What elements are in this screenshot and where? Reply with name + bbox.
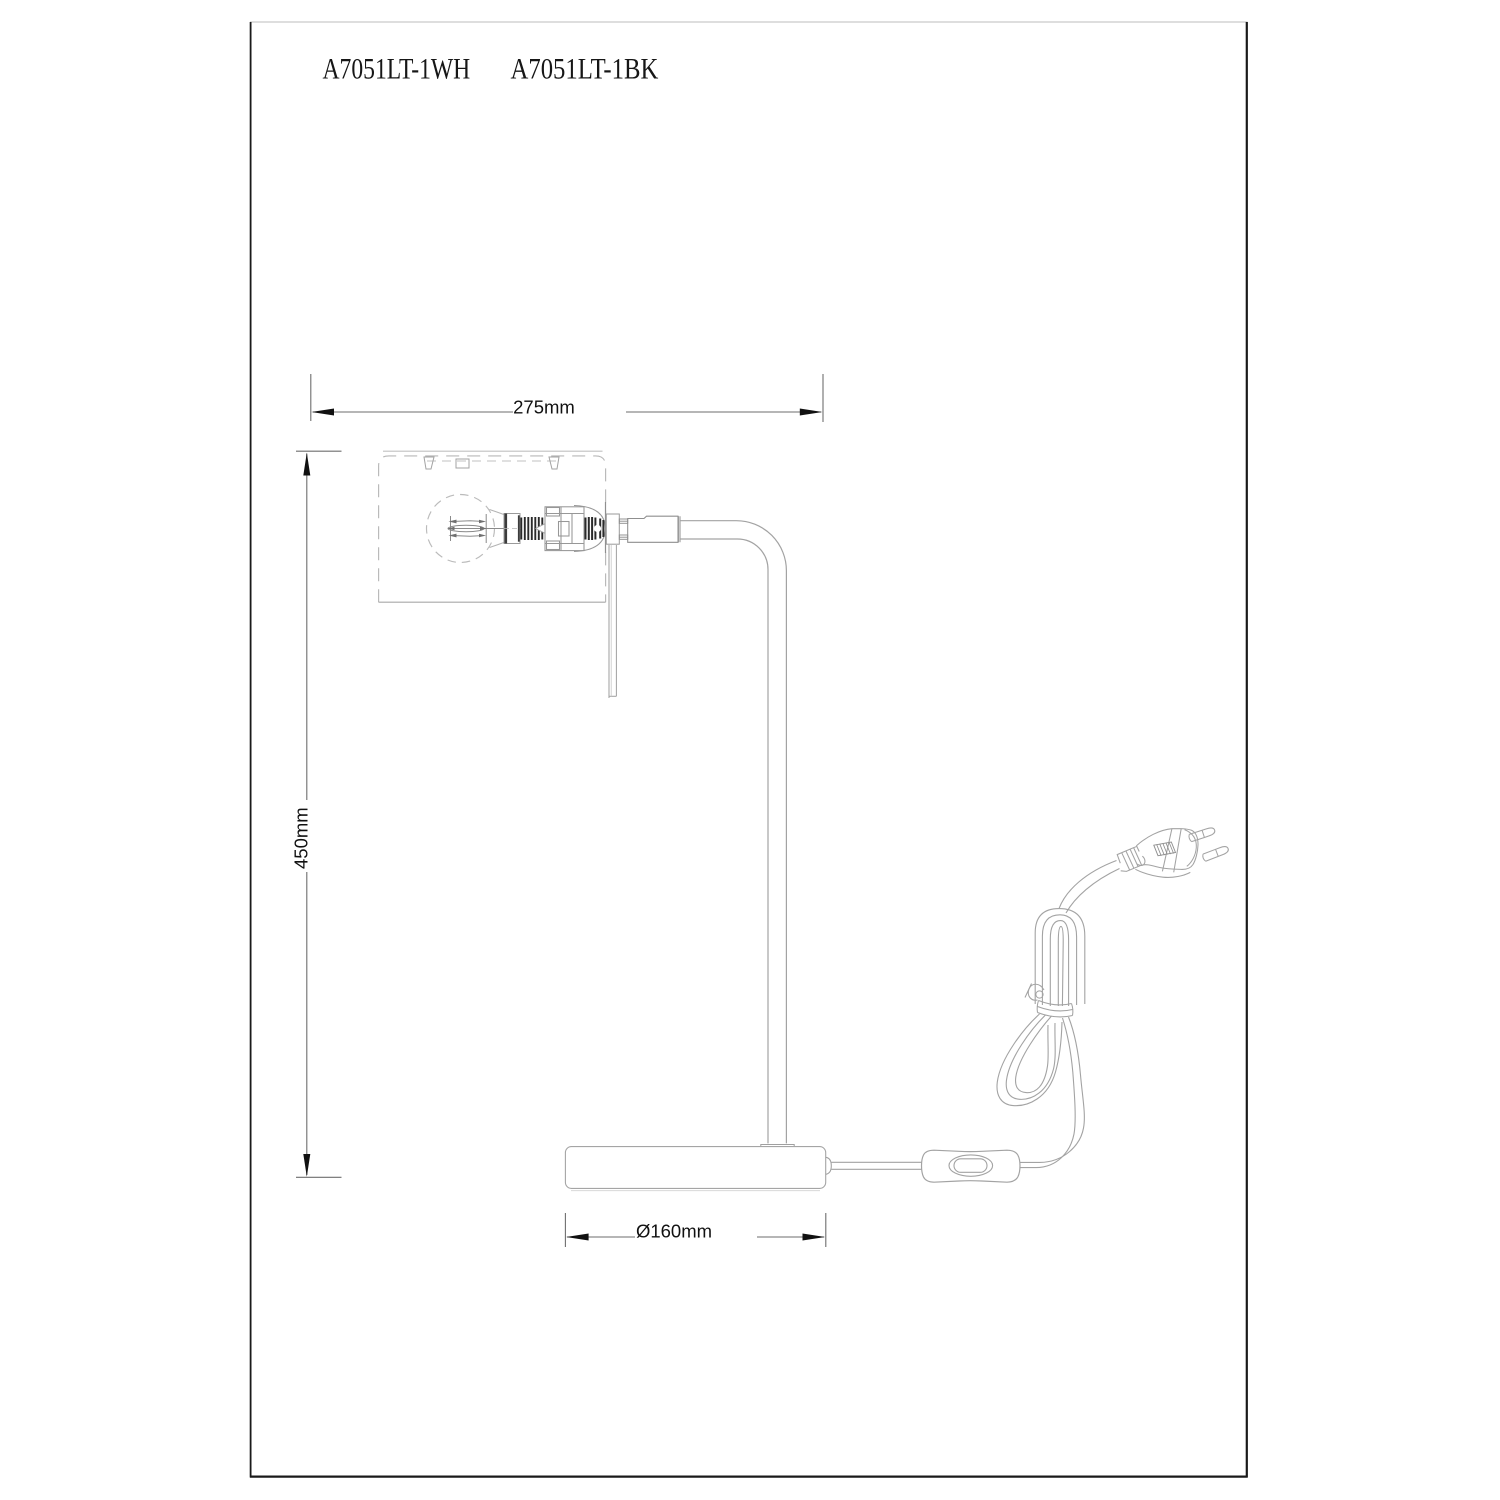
svg-text:275mm: 275mm: [513, 397, 575, 418]
svg-text:Ø160mm: Ø160mm: [636, 1221, 712, 1242]
svg-text:450mm: 450mm: [290, 807, 311, 869]
svg-text:A7051LT-1WH: A7051LT-1WH: [323, 52, 471, 85]
svg-text:A7051LT-1BK: A7051LT-1BK: [511, 52, 659, 85]
